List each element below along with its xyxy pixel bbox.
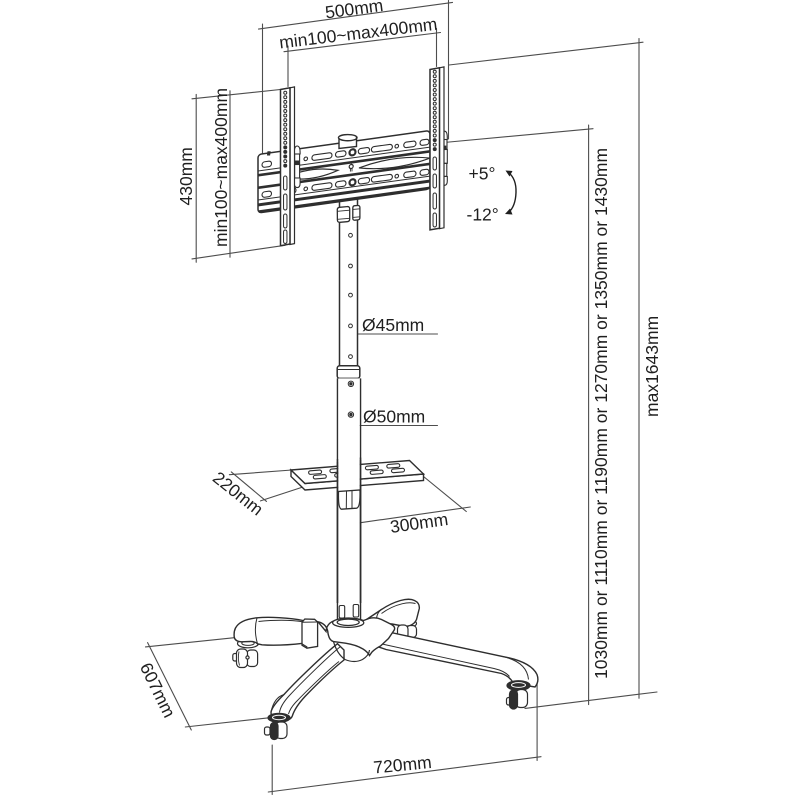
svg-text:max1643mm: max1643mm — [642, 316, 662, 417]
svg-text:Ø45mm: Ø45mm — [362, 315, 424, 335]
svg-text:+5°: +5° — [469, 164, 496, 184]
svg-text:Ø50mm: Ø50mm — [363, 407, 425, 427]
svg-text:1030mm or 1110mm or 1190mm or: 1030mm or 1110mm or 1190mm or 1270mm or … — [591, 148, 611, 679]
svg-text:-12°: -12° — [467, 205, 499, 225]
svg-text:min100~max400mm: min100~max400mm — [211, 88, 231, 247]
svg-text:430mm: 430mm — [176, 147, 196, 205]
